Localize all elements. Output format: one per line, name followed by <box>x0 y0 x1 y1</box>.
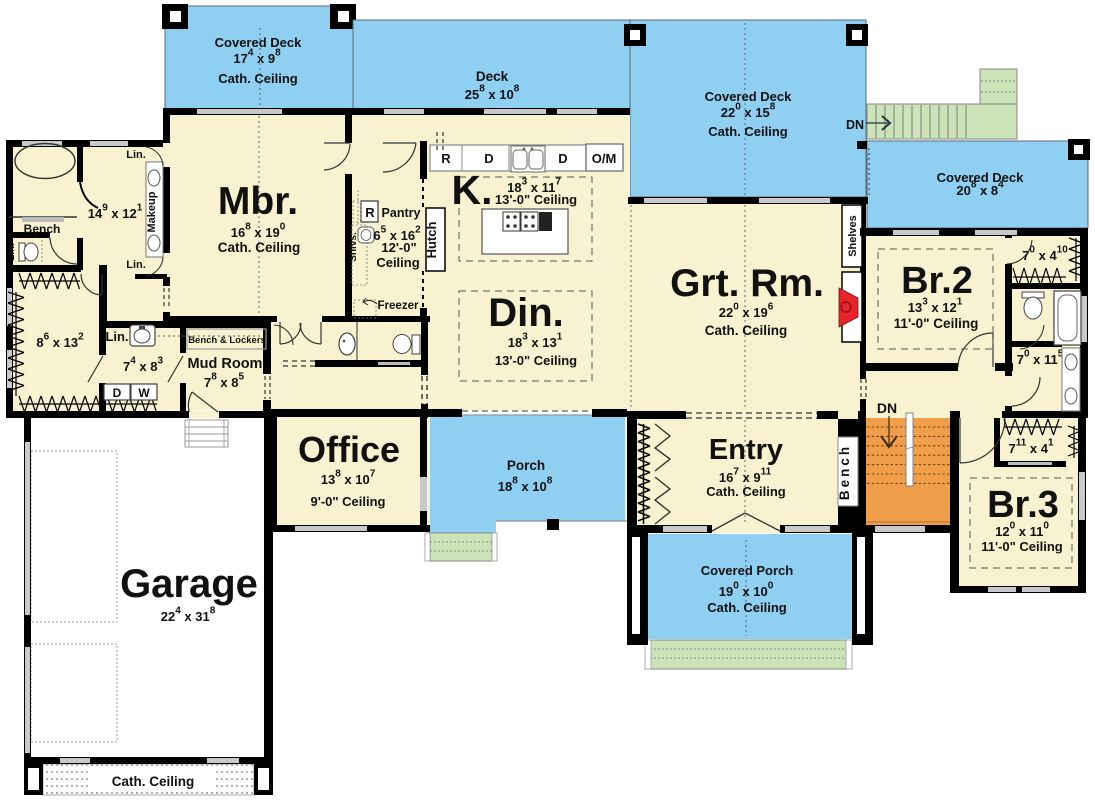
svg-text:Cath. Ceiling: Cath. Ceiling <box>218 71 298 86</box>
svg-text:Garage: Garage <box>120 562 258 606</box>
svg-text:13'-0" Ceiling: 13'-0" Ceiling <box>495 353 577 368</box>
svg-text:Lin.: Lin. <box>126 259 146 271</box>
svg-text:O/M: O/M <box>592 151 617 166</box>
svg-text:DN: DN <box>846 118 864 132</box>
svg-text:Cath. Ceiling: Cath. Ceiling <box>706 484 786 499</box>
svg-text:220 x 196: 220 x 196 <box>719 302 774 321</box>
svg-text:74 x 83: 74 x 83 <box>123 356 163 375</box>
svg-text:133 x 121: 133 x 121 <box>908 297 963 316</box>
svg-text:Shlvs.: Shlvs. <box>348 232 359 262</box>
svg-text:70 x 115: 70 x 115 <box>1017 349 1064 368</box>
svg-text:D: D <box>558 151 567 166</box>
svg-text:Mbr.: Mbr. <box>218 180 298 223</box>
svg-text:W: W <box>138 386 150 400</box>
svg-text:Office: Office <box>298 429 400 470</box>
svg-text:168 x 190: 168 x 190 <box>231 222 286 241</box>
svg-text:9'-0" Ceiling: 9'-0" Ceiling <box>311 494 386 509</box>
svg-text:Mud Room: Mud Room <box>188 356 263 372</box>
svg-text:Entry: Entry <box>709 434 783 466</box>
svg-text:Lin.: Lin. <box>105 329 128 344</box>
svg-text:Lin.: Lin. <box>6 243 17 261</box>
svg-text:78 x 85: 78 x 85 <box>204 372 244 391</box>
svg-text:Cath. Ceiling: Cath. Ceiling <box>705 323 788 338</box>
svg-text:11'-0" Ceiling: 11'-0" Ceiling <box>981 539 1063 554</box>
svg-text:D: D <box>113 386 122 400</box>
svg-text:Covered Deck: Covered Deck <box>215 35 302 50</box>
svg-text:Cath. Ceiling: Cath. Ceiling <box>218 240 301 255</box>
svg-text:220 x 158: 220 x 158 <box>721 102 776 121</box>
svg-text:K.: K. <box>452 167 493 213</box>
svg-text:DN: DN <box>877 400 897 416</box>
svg-text:711 x 41: 711 x 41 <box>1008 438 1054 457</box>
svg-text:Pantry: Pantry <box>382 206 421 220</box>
svg-text:D: D <box>484 151 493 166</box>
svg-text:183 x 131: 183 x 131 <box>508 332 563 351</box>
svg-text:Hutch: Hutch <box>424 222 439 259</box>
svg-text:208 x 84: 208 x 84 <box>956 180 1004 199</box>
svg-text:149 x 121: 149 x 121 <box>88 203 143 222</box>
svg-text:Makeup: Makeup <box>146 191 158 232</box>
svg-text:174 x 98: 174 x 98 <box>233 48 281 67</box>
svg-text:Grt. Rm.: Grt. Rm. <box>670 262 824 305</box>
svg-text:Covered Deck: Covered Deck <box>705 89 792 104</box>
svg-text:Din.: Din. <box>488 291 564 335</box>
svg-text:Ceiling: Ceiling <box>376 255 419 270</box>
svg-text:R: R <box>365 205 375 220</box>
svg-text:Cath. Ceiling: Cath. Ceiling <box>708 124 788 139</box>
svg-text:Covered Porch: Covered Porch <box>701 563 794 578</box>
svg-text:11'-0" Ceiling: 11'-0" Ceiling <box>894 316 979 331</box>
svg-text:Bench: Bench <box>24 222 61 236</box>
svg-text:Shelves: Shelves <box>847 215 859 257</box>
svg-text:12'-0": 12'-0" <box>381 240 416 255</box>
svg-text:Bench: Bench <box>837 444 852 500</box>
svg-text:Lin.: Lin. <box>126 149 146 161</box>
svg-text:188 x 108: 188 x 108 <box>498 476 553 495</box>
svg-text:120 x 110: 120 x 110 <box>995 521 1049 540</box>
svg-text:R: R <box>441 151 451 166</box>
svg-text:86 x 132: 86 x 132 <box>36 332 84 351</box>
svg-text:Deck: Deck <box>476 69 509 84</box>
svg-text:Freezer: Freezer <box>378 300 419 312</box>
svg-text:13'-0" Ceiling: 13'-0" Ceiling <box>495 192 577 207</box>
svg-text:Cath. Ceiling: Cath. Ceiling <box>707 600 787 615</box>
svg-text:Porch: Porch <box>507 458 545 473</box>
svg-text:138 x 107: 138 x 107 <box>321 469 376 488</box>
svg-text:Bench & Lockers: Bench & Lockers <box>188 335 266 346</box>
svg-text:Cath. Ceiling: Cath. Ceiling <box>112 774 195 789</box>
svg-text:224 x 318: 224 x 318 <box>161 606 216 625</box>
svg-text:190 x 100: 190 x 100 <box>719 581 774 600</box>
svg-text:258 x 108: 258 x 108 <box>465 84 520 103</box>
